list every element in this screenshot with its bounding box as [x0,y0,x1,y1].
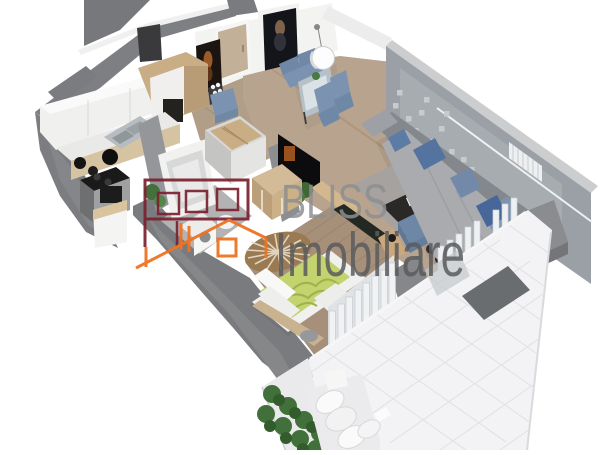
svg-text:Imobiliare: Imobiliare [275,221,465,290]
